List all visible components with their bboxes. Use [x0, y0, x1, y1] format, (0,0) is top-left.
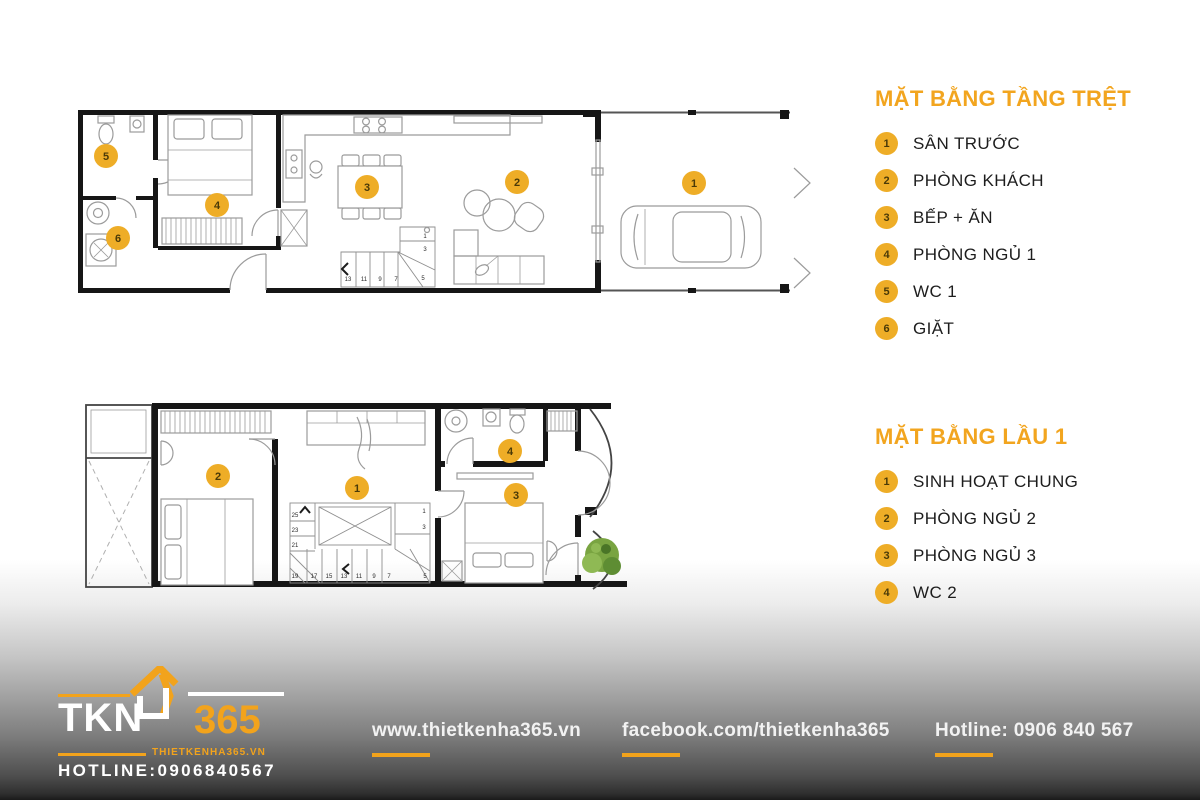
logo-right-line: [188, 692, 284, 696]
link-underline-bar: [935, 753, 993, 757]
hotline-link[interactable]: Hotline: 0906 840 567: [935, 720, 1134, 757]
legend-number-badge: 4: [875, 243, 898, 266]
balcony-plant: [582, 538, 621, 575]
legend-label: GIẶT: [913, 319, 954, 339]
legend-item-phong-ngu-1: 4 PHÒNG NGỦ 1: [875, 243, 1175, 266]
link-underline-bar: [622, 753, 680, 757]
legend-label: WC 2: [913, 583, 957, 603]
legend-number-badge: 1: [875, 132, 898, 155]
first-floor-title: MẶT BẰNG LẦU 1: [875, 424, 1175, 450]
svg-text:25: 25: [292, 513, 299, 519]
svg-text:5: 5: [421, 276, 425, 282]
svg-text:3: 3: [513, 490, 519, 502]
legend-number-badge: 3: [875, 544, 898, 567]
logo-365-text: 365: [194, 698, 261, 742]
first-stairs: 25 23 21 19 17 15 13 11 9 7 1 3 5: [290, 503, 430, 583]
poster-root: 13 11 9 7 5 1 3: [0, 0, 1200, 800]
svg-text:9: 9: [378, 277, 382, 283]
ground-stairs: 13 11 9 7 5 1 3: [341, 227, 435, 287]
svg-text:5: 5: [103, 151, 109, 163]
legend-label: PHÒNG NGỦ 2: [913, 509, 1036, 529]
ground-floor-title: MẶT BẰNG TẦNG TRỆT: [875, 86, 1175, 112]
svg-text:4: 4: [214, 200, 221, 212]
hotline-link-text[interactable]: Hotline: 0906 840 567: [935, 720, 1134, 741]
legend-number-badge: 2: [875, 507, 898, 530]
legend-label: WC 1: [913, 282, 957, 302]
svg-text:11: 11: [356, 574, 363, 580]
logo-tkn-text: TKN: [58, 696, 143, 740]
svg-text:17: 17: [311, 574, 318, 580]
link-underline-bar: [372, 753, 430, 757]
svg-text:6: 6: [115, 233, 121, 245]
svg-text:1: 1: [354, 483, 360, 495]
legend-number-badge: 6: [875, 317, 898, 340]
svg-text:1: 1: [423, 234, 427, 240]
bedroom2-furniture: [161, 411, 271, 585]
svg-text:15: 15: [326, 574, 333, 580]
svg-text:3: 3: [422, 525, 426, 531]
svg-text:9: 9: [372, 574, 376, 580]
front-yard-car: [621, 168, 810, 288]
legend-number-badge: 3: [875, 206, 898, 229]
legend-label: BẾP + ĂN: [913, 208, 993, 228]
legend-label: PHÒNG NGỦ 1: [913, 245, 1036, 265]
first-floor-plan: 25 23 21 19 17 15 13 11 9 7 1 3 5: [85, 403, 645, 593]
logo-under-line: [58, 753, 146, 756]
legend-item-giat: 6 GIẶT: [875, 317, 1175, 340]
legend-item-wc-1: 5 WC 1: [875, 280, 1175, 303]
legend-label: SINH HOẠT CHUNG: [913, 472, 1078, 492]
bedroom1-furniture: [162, 115, 252, 244]
legend-item-phong-ngu-2: 2 PHÒNG NGỦ 2: [875, 507, 1175, 530]
living-room-furniture: [454, 116, 547, 284]
legend-item-sinh-hoat-chung: 1 SINH HOẠT CHUNG: [875, 470, 1175, 493]
facebook-link-text[interactable]: facebook.com/thietkenha365: [622, 720, 890, 741]
ground-floor-legend: MẶT BẰNG TẦNG TRỆT 1 SÂN TRƯỚC 2 PHÒNG K…: [875, 86, 1175, 340]
svg-text:7: 7: [387, 574, 391, 580]
ground-shaft: [281, 210, 307, 246]
svg-text:13: 13: [345, 277, 352, 283]
svg-text:3: 3: [423, 247, 427, 253]
tkn365-logo: TKN 365 THIETKENHA365.VN HOTLINE:0906840…: [58, 666, 308, 784]
svg-text:2: 2: [215, 471, 221, 483]
legend-number-badge: 1: [875, 470, 898, 493]
legend-item-phong-ngu-3: 3 PHÒNG NGỦ 3: [875, 544, 1175, 567]
legend-item-phong-khach: 2 PHÒNG KHÁCH: [875, 169, 1175, 192]
svg-text:3: 3: [364, 182, 370, 194]
ground-floor-plan: 13 11 9 7 5 1 3: [78, 110, 818, 296]
wc2-fixtures: [445, 409, 525, 433]
svg-text:2: 2: [514, 177, 520, 189]
website-link[interactable]: www.thietkenha365.vn: [372, 720, 581, 757]
legend-label: PHÒNG KHÁCH: [913, 171, 1044, 191]
legend-item-bep-an: 3 BẾP + ĂN: [875, 206, 1175, 229]
svg-text:11: 11: [361, 277, 368, 283]
legend-item-san-truoc: 1 SÂN TRƯỚC: [875, 132, 1175, 155]
svg-text:4: 4: [507, 446, 514, 458]
legend-item-wc-2: 4 WC 2: [875, 581, 1175, 604]
svg-text:19: 19: [292, 574, 299, 580]
void-skylight: [86, 405, 152, 587]
wc1-fixtures: [98, 116, 144, 144]
legend-label: PHÒNG NGỦ 3: [913, 546, 1036, 566]
logo-site-text: THIETKENHA365.VN: [152, 747, 266, 758]
svg-text:1: 1: [422, 509, 426, 515]
svg-text:21: 21: [292, 543, 299, 549]
svg-text:23: 23: [292, 528, 299, 534]
kitchen-dining-furniture: [283, 115, 510, 219]
first-floor-legend: MẶT BẰNG LẦU 1 1 SINH HOẠT CHUNG 2 PHÒNG…: [875, 424, 1175, 604]
svg-text:13: 13: [341, 574, 348, 580]
logo-hotline-text: HOTLINE:0906840567: [58, 761, 276, 781]
common-area-furniture: [307, 411, 425, 469]
legend-number-badge: 5: [875, 280, 898, 303]
legend-label: SÂN TRƯỚC: [913, 134, 1020, 154]
legend-number-badge: 4: [875, 581, 898, 604]
legend-number-badge: 2: [875, 169, 898, 192]
facebook-link[interactable]: facebook.com/thietkenha365: [622, 720, 890, 757]
svg-text:1: 1: [691, 178, 697, 190]
bedroom3-furniture: [442, 473, 557, 583]
website-link-text[interactable]: www.thietkenha365.vn: [372, 720, 581, 741]
